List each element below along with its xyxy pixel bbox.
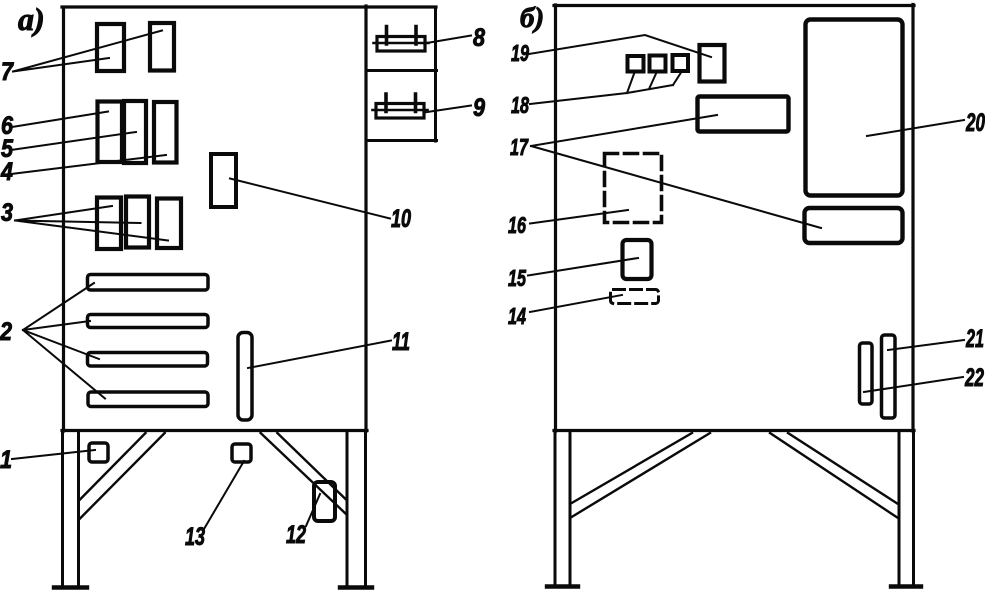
svg-text:17: 17 [510,134,529,160]
svg-text:7: 7 [1,58,14,86]
svg-text:18: 18 [511,92,529,118]
svg-text:20: 20 [965,109,985,137]
svg-text:1: 1 [0,446,12,474]
svg-text:9: 9 [473,94,485,122]
svg-text:22: 22 [964,364,984,392]
svg-text:13: 13 [185,523,205,551]
svg-text:2: 2 [0,318,12,346]
svg-text:19: 19 [511,40,529,66]
svg-text:15: 15 [508,265,527,291]
svg-text:б): б) [520,2,544,34]
svg-text:12: 12 [286,521,306,549]
svg-text:21: 21 [965,325,984,353]
svg-text:14: 14 [508,303,526,329]
svg-text:3: 3 [1,199,13,227]
svg-text:10: 10 [391,205,411,233]
svg-text:8: 8 [473,24,485,52]
svg-text:a): a) [18,1,45,37]
svg-text:16: 16 [508,212,526,238]
svg-text:11: 11 [392,328,410,356]
svg-text:4: 4 [0,158,13,186]
